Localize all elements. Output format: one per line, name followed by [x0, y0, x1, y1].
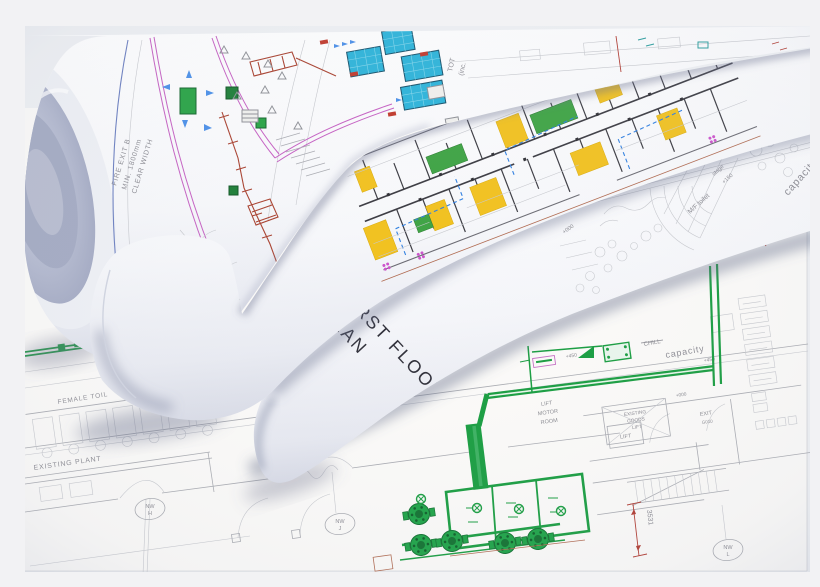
vignette — [25, 26, 810, 572]
blueprint-photo: EXISTING PLANT FEMALE TOIL NW H NW J — [0, 0, 820, 587]
blueprint-photo-canvas: EXISTING PLANT FEMALE TOIL NW H NW J — [0, 0, 820, 587]
